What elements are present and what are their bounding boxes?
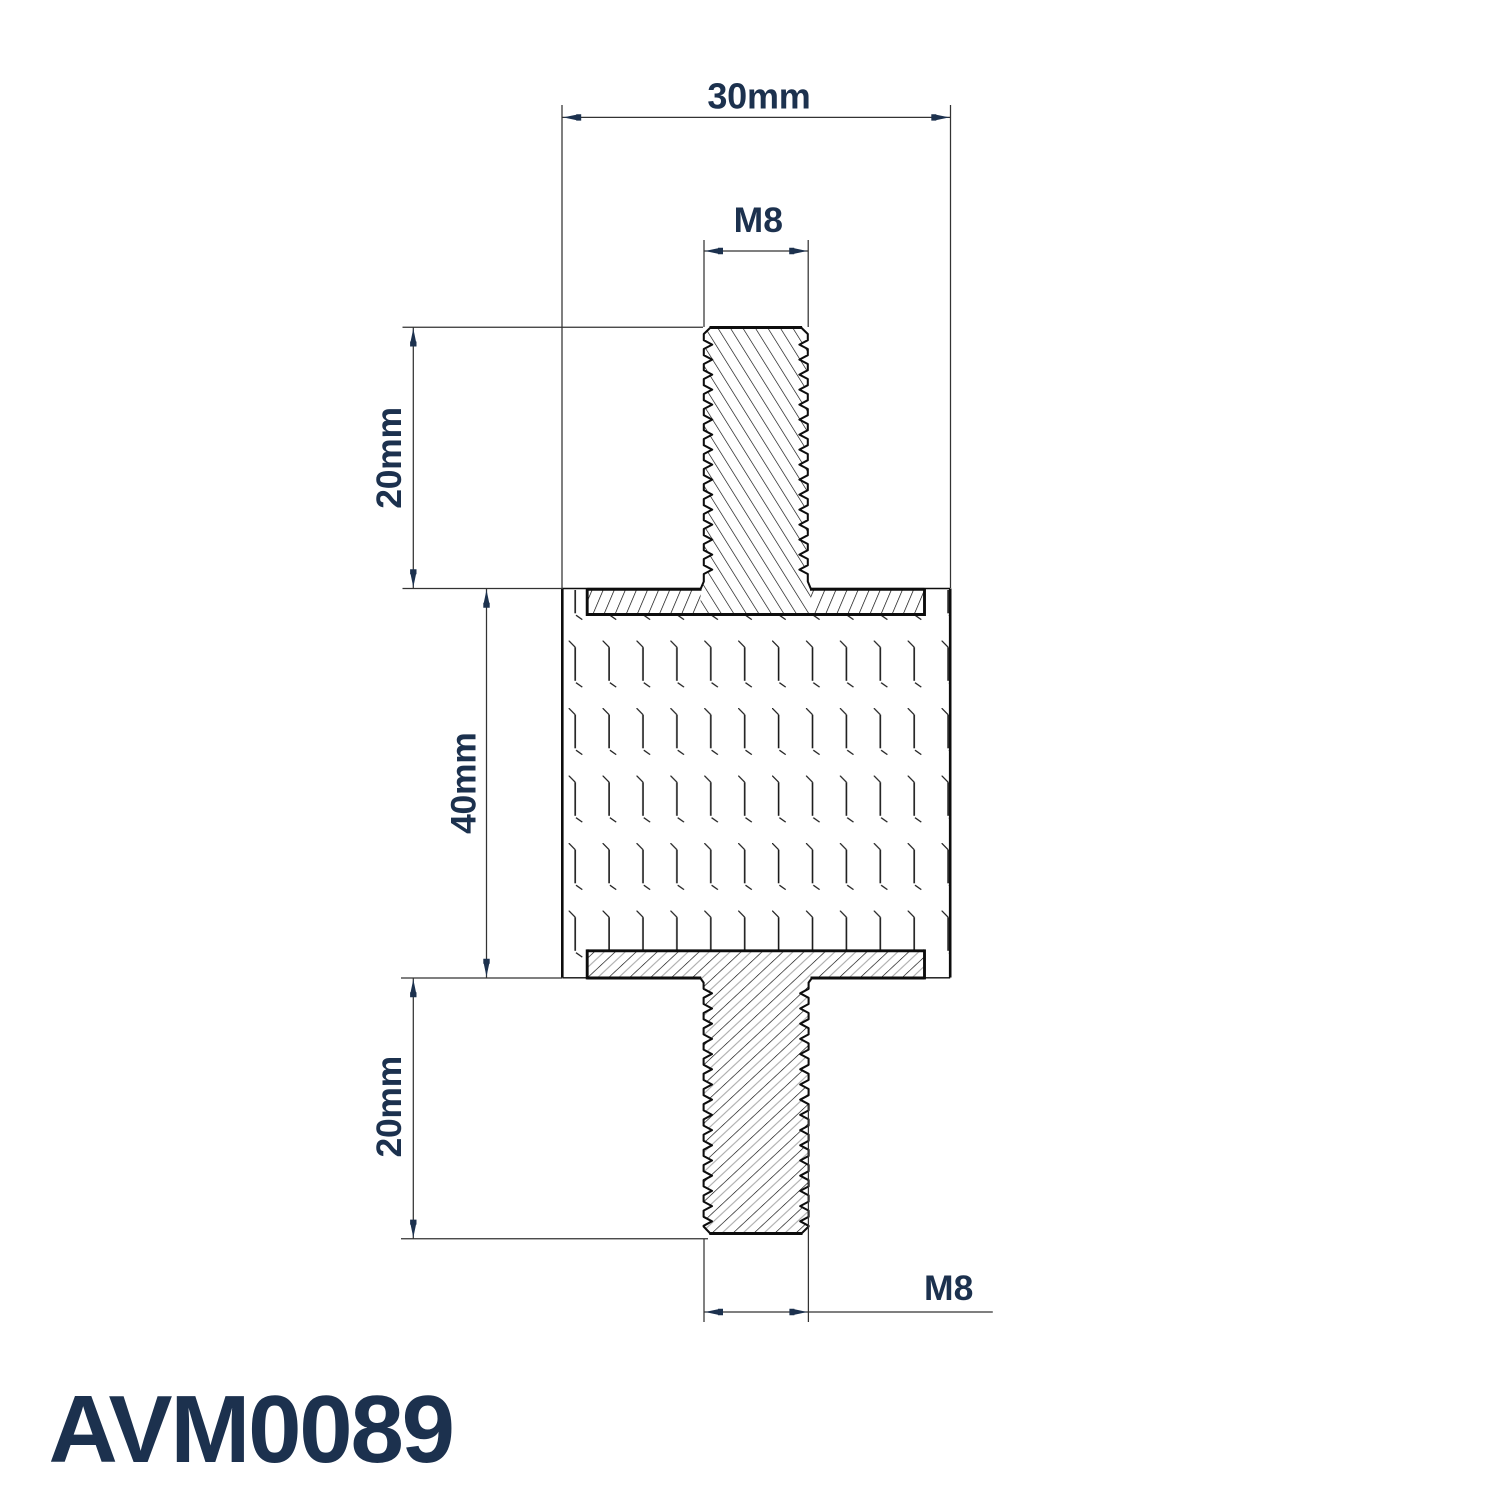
svg-text:40mm: 40mm: [444, 732, 484, 833]
svg-text:M8: M8: [924, 1268, 973, 1308]
svg-text:30mm: 30mm: [707, 75, 810, 116]
svg-text:AVM0089: AVM0089: [49, 1376, 453, 1483]
svg-text:M8: M8: [734, 200, 783, 240]
svg-text:20mm: 20mm: [369, 407, 409, 508]
svg-text:20mm: 20mm: [369, 1056, 409, 1157]
